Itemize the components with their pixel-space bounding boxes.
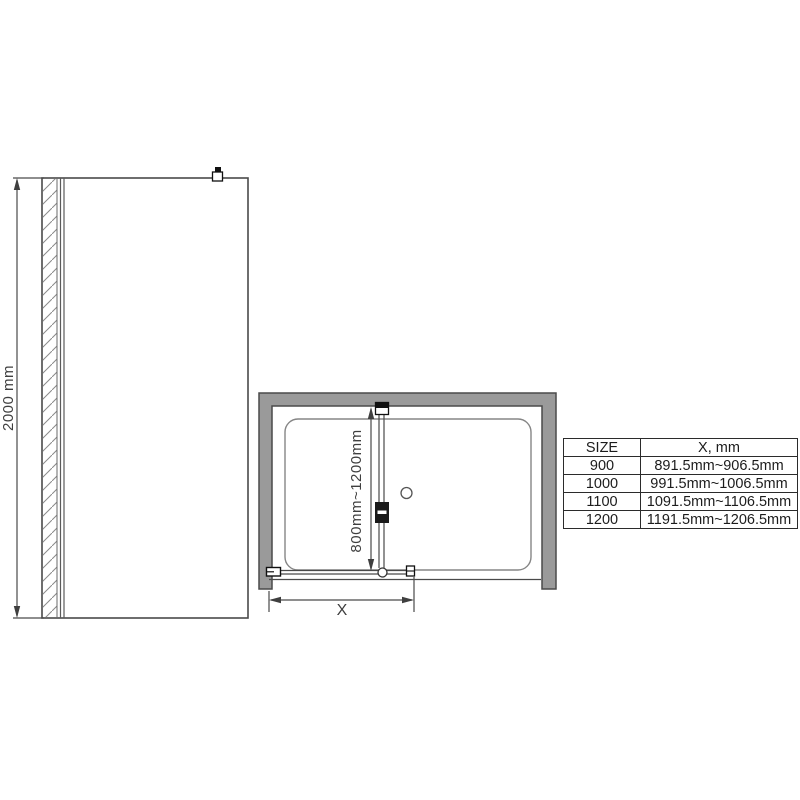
x-range-cell: 1091.5mm~1106.5mm xyxy=(641,493,798,511)
table-row: 1000 991.5mm~1006.5mm xyxy=(564,475,798,493)
arrow-down-icon xyxy=(14,606,20,618)
top-bracket-icon xyxy=(213,172,223,181)
size-cell: 1100 xyxy=(564,493,641,511)
drawing-canvas: 2000 mm 800mm~1200mm X SIZE X, mm 900 89… xyxy=(0,0,800,800)
glass-panel-outline xyxy=(42,178,248,618)
roller-icon xyxy=(378,568,387,577)
front-view xyxy=(13,167,248,618)
x-range-cell: 991.5mm~1006.5mm xyxy=(641,475,798,493)
drain-icon xyxy=(401,488,412,499)
size-cell: 900 xyxy=(564,457,641,475)
height-dimension-label: 2000 mm xyxy=(1,358,17,438)
width-dimension-label: X xyxy=(330,603,354,619)
table-row: 1200 1191.5mm~1206.5mm xyxy=(564,511,798,529)
screen-wall-clamp-icon xyxy=(376,403,389,409)
plan-view xyxy=(259,393,556,612)
table-row: 900 891.5mm~906.5mm xyxy=(564,457,798,475)
size-table: SIZE X, mm 900 891.5mm~906.5mm 1000 991.… xyxy=(563,438,798,529)
x-range-cell: 891.5mm~906.5mm xyxy=(641,457,798,475)
table-row: 1100 1091.5mm~1106.5mm xyxy=(564,493,798,511)
size-table-container: SIZE X, mm 900 891.5mm~906.5mm 1000 991.… xyxy=(563,438,797,529)
size-cell: 1200 xyxy=(564,511,641,529)
technical-drawing xyxy=(0,0,800,800)
size-cell: 1000 xyxy=(564,475,641,493)
arrow-left-icon xyxy=(269,597,281,603)
x-column-header: X, mm xyxy=(641,439,798,457)
size-table-header-row: SIZE X, mm xyxy=(564,439,798,457)
size-column-header: SIZE xyxy=(564,439,641,457)
arrow-right-icon xyxy=(402,597,414,603)
x-range-cell: 1191.5mm~1206.5mm xyxy=(641,511,798,529)
wall-hatch xyxy=(43,179,57,617)
depth-dimension-label: 800mm~1200mm xyxy=(349,426,365,556)
arrow-up-icon xyxy=(368,407,374,419)
glass-connector-slot xyxy=(378,511,387,515)
arrow-up-icon xyxy=(14,178,20,190)
